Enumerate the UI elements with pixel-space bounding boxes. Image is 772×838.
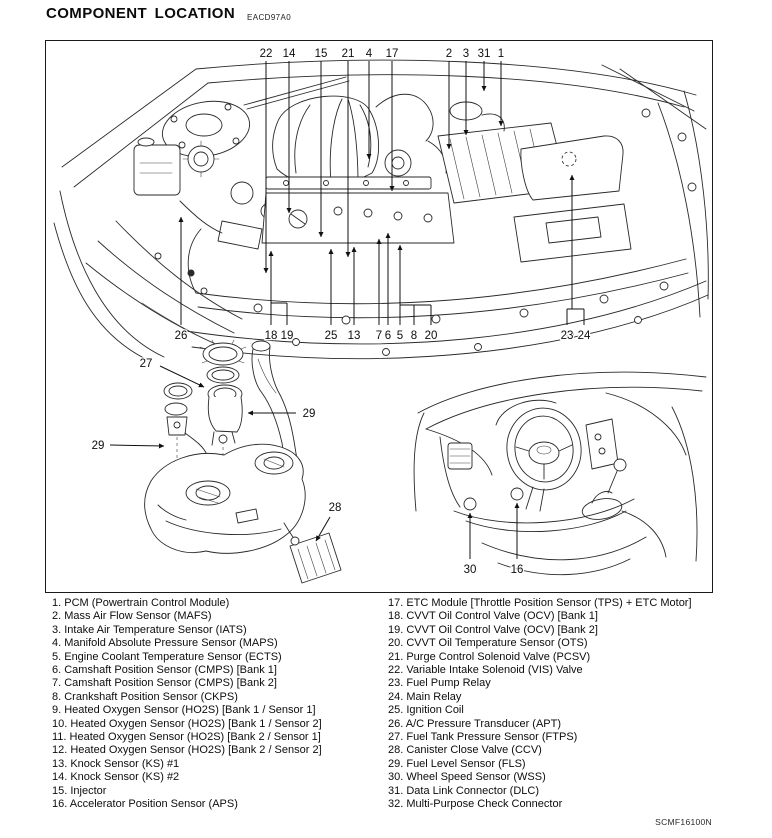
callout-2: 2 <box>446 48 452 60</box>
legend-item: 27. Fuel Tank Pressure Sensor (FTPS) <box>388 731 692 744</box>
callout-7: 7 <box>376 330 382 342</box>
callout-5: 5 <box>397 330 403 342</box>
legend-item: 31. Data Link Connector (DLC) <box>388 785 692 798</box>
legend-item: 13. Knock Sensor (KS) #1 <box>52 758 322 771</box>
callout-6: 6 <box>385 330 391 342</box>
legend-item: 25. Ignition Coil <box>388 704 692 717</box>
legend-item: 26. A/C Pressure Transducer (APT) <box>388 718 692 731</box>
callout-26: 26 <box>175 330 188 342</box>
legend-item: 4. Manifold Absolute Pressure Sensor (MA… <box>52 637 322 650</box>
callout-3: 3 <box>463 48 469 60</box>
callout-13: 13 <box>348 330 361 342</box>
legend-item: 16. Accelerator Position Sensor (APS) <box>52 798 322 811</box>
callout-23: 23 <box>561 330 574 342</box>
fuel-tank-diagram: 27 29 29 28 <box>92 340 342 583</box>
callout-28: 28 <box>329 502 342 514</box>
engine-bay-diagram <box>54 60 708 361</box>
callout-1: 1 <box>498 48 504 60</box>
legend-item: 24. Main Relay <box>388 691 692 704</box>
legend-item: 18. CVVT Oil Control Valve (OCV) [Bank 1… <box>388 610 692 623</box>
component-location-figure: 22 14 15 21 4 17 2 3 31 1 26 18 19 25 13… <box>45 40 713 593</box>
callout-27: 27 <box>140 358 153 370</box>
figure-drawing: 22 14 15 21 4 17 2 3 31 1 26 18 19 25 13… <box>46 41 712 592</box>
legend-item: 11. Heated Oxygen Sensor (HO2S) [Bank 2 … <box>52 731 322 744</box>
legend-item: 7. Camshaft Position Sensor (CMPS) [Bank… <box>52 677 322 690</box>
callout-15: 15 <box>315 48 328 60</box>
legend-item: 14. Knock Sensor (KS) #2 <box>52 771 322 784</box>
legend-left-column: 1. PCM (Powertrain Control Module) 2. Ma… <box>52 597 322 812</box>
legend-item: 6. Camshaft Position Sensor (CMPS) [Bank… <box>52 664 322 677</box>
callout-16: 16 <box>511 564 524 576</box>
legend-item: 32. Multi-Purpose Check Connector <box>388 798 692 811</box>
page-title: COMPONENT LOCATION <box>46 5 235 22</box>
legend-item: 3. Intake Air Temperature Sensor (IATS) <box>52 624 322 637</box>
callout-29-right: 29 <box>303 408 316 420</box>
dashboard-diagram: 30 16 <box>414 372 706 576</box>
legend-item: 15. Injector <box>52 785 322 798</box>
document-reference-code: SCMF16100N <box>655 817 712 827</box>
callout-8: 8 <box>411 330 417 342</box>
callout-30: 30 <box>464 564 477 576</box>
legend-item: 23. Fuel Pump Relay <box>388 677 692 690</box>
callout-17: 17 <box>386 48 399 60</box>
legend-item: 21. Purge Control Solenoid Valve (PCSV) <box>388 651 692 664</box>
legend-item: 19. CVVT Oil Control Valve (OCV) [Bank 2… <box>388 624 692 637</box>
legend-item: 28. Canister Close Valve (CCV) <box>388 744 692 757</box>
legend-right-column: 17. ETC Module [Throttle Position Sensor… <box>388 597 692 812</box>
legend-item: 9. Heated Oxygen Sensor (HO2S) [Bank 1 /… <box>52 704 322 717</box>
legend-item: 10. Heated Oxygen Sensor (HO2S) [Bank 1 … <box>52 718 322 731</box>
section-code: EACD97A0 <box>247 13 291 22</box>
callout-29-left: 29 <box>92 440 105 452</box>
callout-21: 21 <box>342 48 355 60</box>
legend-item: 29. Fuel Level Sensor (FLS) <box>388 758 692 771</box>
manual-page: COMPONENT LOCATION EACD97A0 <box>0 0 772 838</box>
callout-14: 14 <box>283 48 296 60</box>
legend-item: 5. Engine Coolant Temperature Sensor (EC… <box>52 651 322 664</box>
callout-22: 22 <box>260 48 273 60</box>
wss-marker <box>464 498 476 510</box>
callout-24: 24 <box>578 330 591 342</box>
legend-item: 20. CVVT Oil Temperature Sensor (OTS) <box>388 637 692 650</box>
callout-4: 4 <box>366 48 373 60</box>
legend-item: 2. Mass Air Flow Sensor (MAFS) <box>52 610 322 623</box>
callout-18: 18 <box>265 330 278 342</box>
callout-20: 20 <box>425 330 438 342</box>
legend-item: 17. ETC Module [Throttle Position Sensor… <box>388 597 692 610</box>
legend-item: 8. Crankshaft Position Sensor (CKPS) <box>52 691 322 704</box>
aps-marker <box>511 488 523 500</box>
legend-item: 12. Heated Oxygen Sensor (HO2S) [Bank 2 … <box>52 744 322 757</box>
callout-19: 19 <box>281 330 294 342</box>
legend-item: 22. Variable Intake Solenoid (VIS) Valve <box>388 664 692 677</box>
legend-item: 30. Wheel Speed Sensor (WSS) <box>388 771 692 784</box>
legend-item: 1. PCM (Powertrain Control Module) <box>52 597 322 610</box>
callout-25: 25 <box>325 330 338 342</box>
callout-31: 31 <box>478 48 491 60</box>
